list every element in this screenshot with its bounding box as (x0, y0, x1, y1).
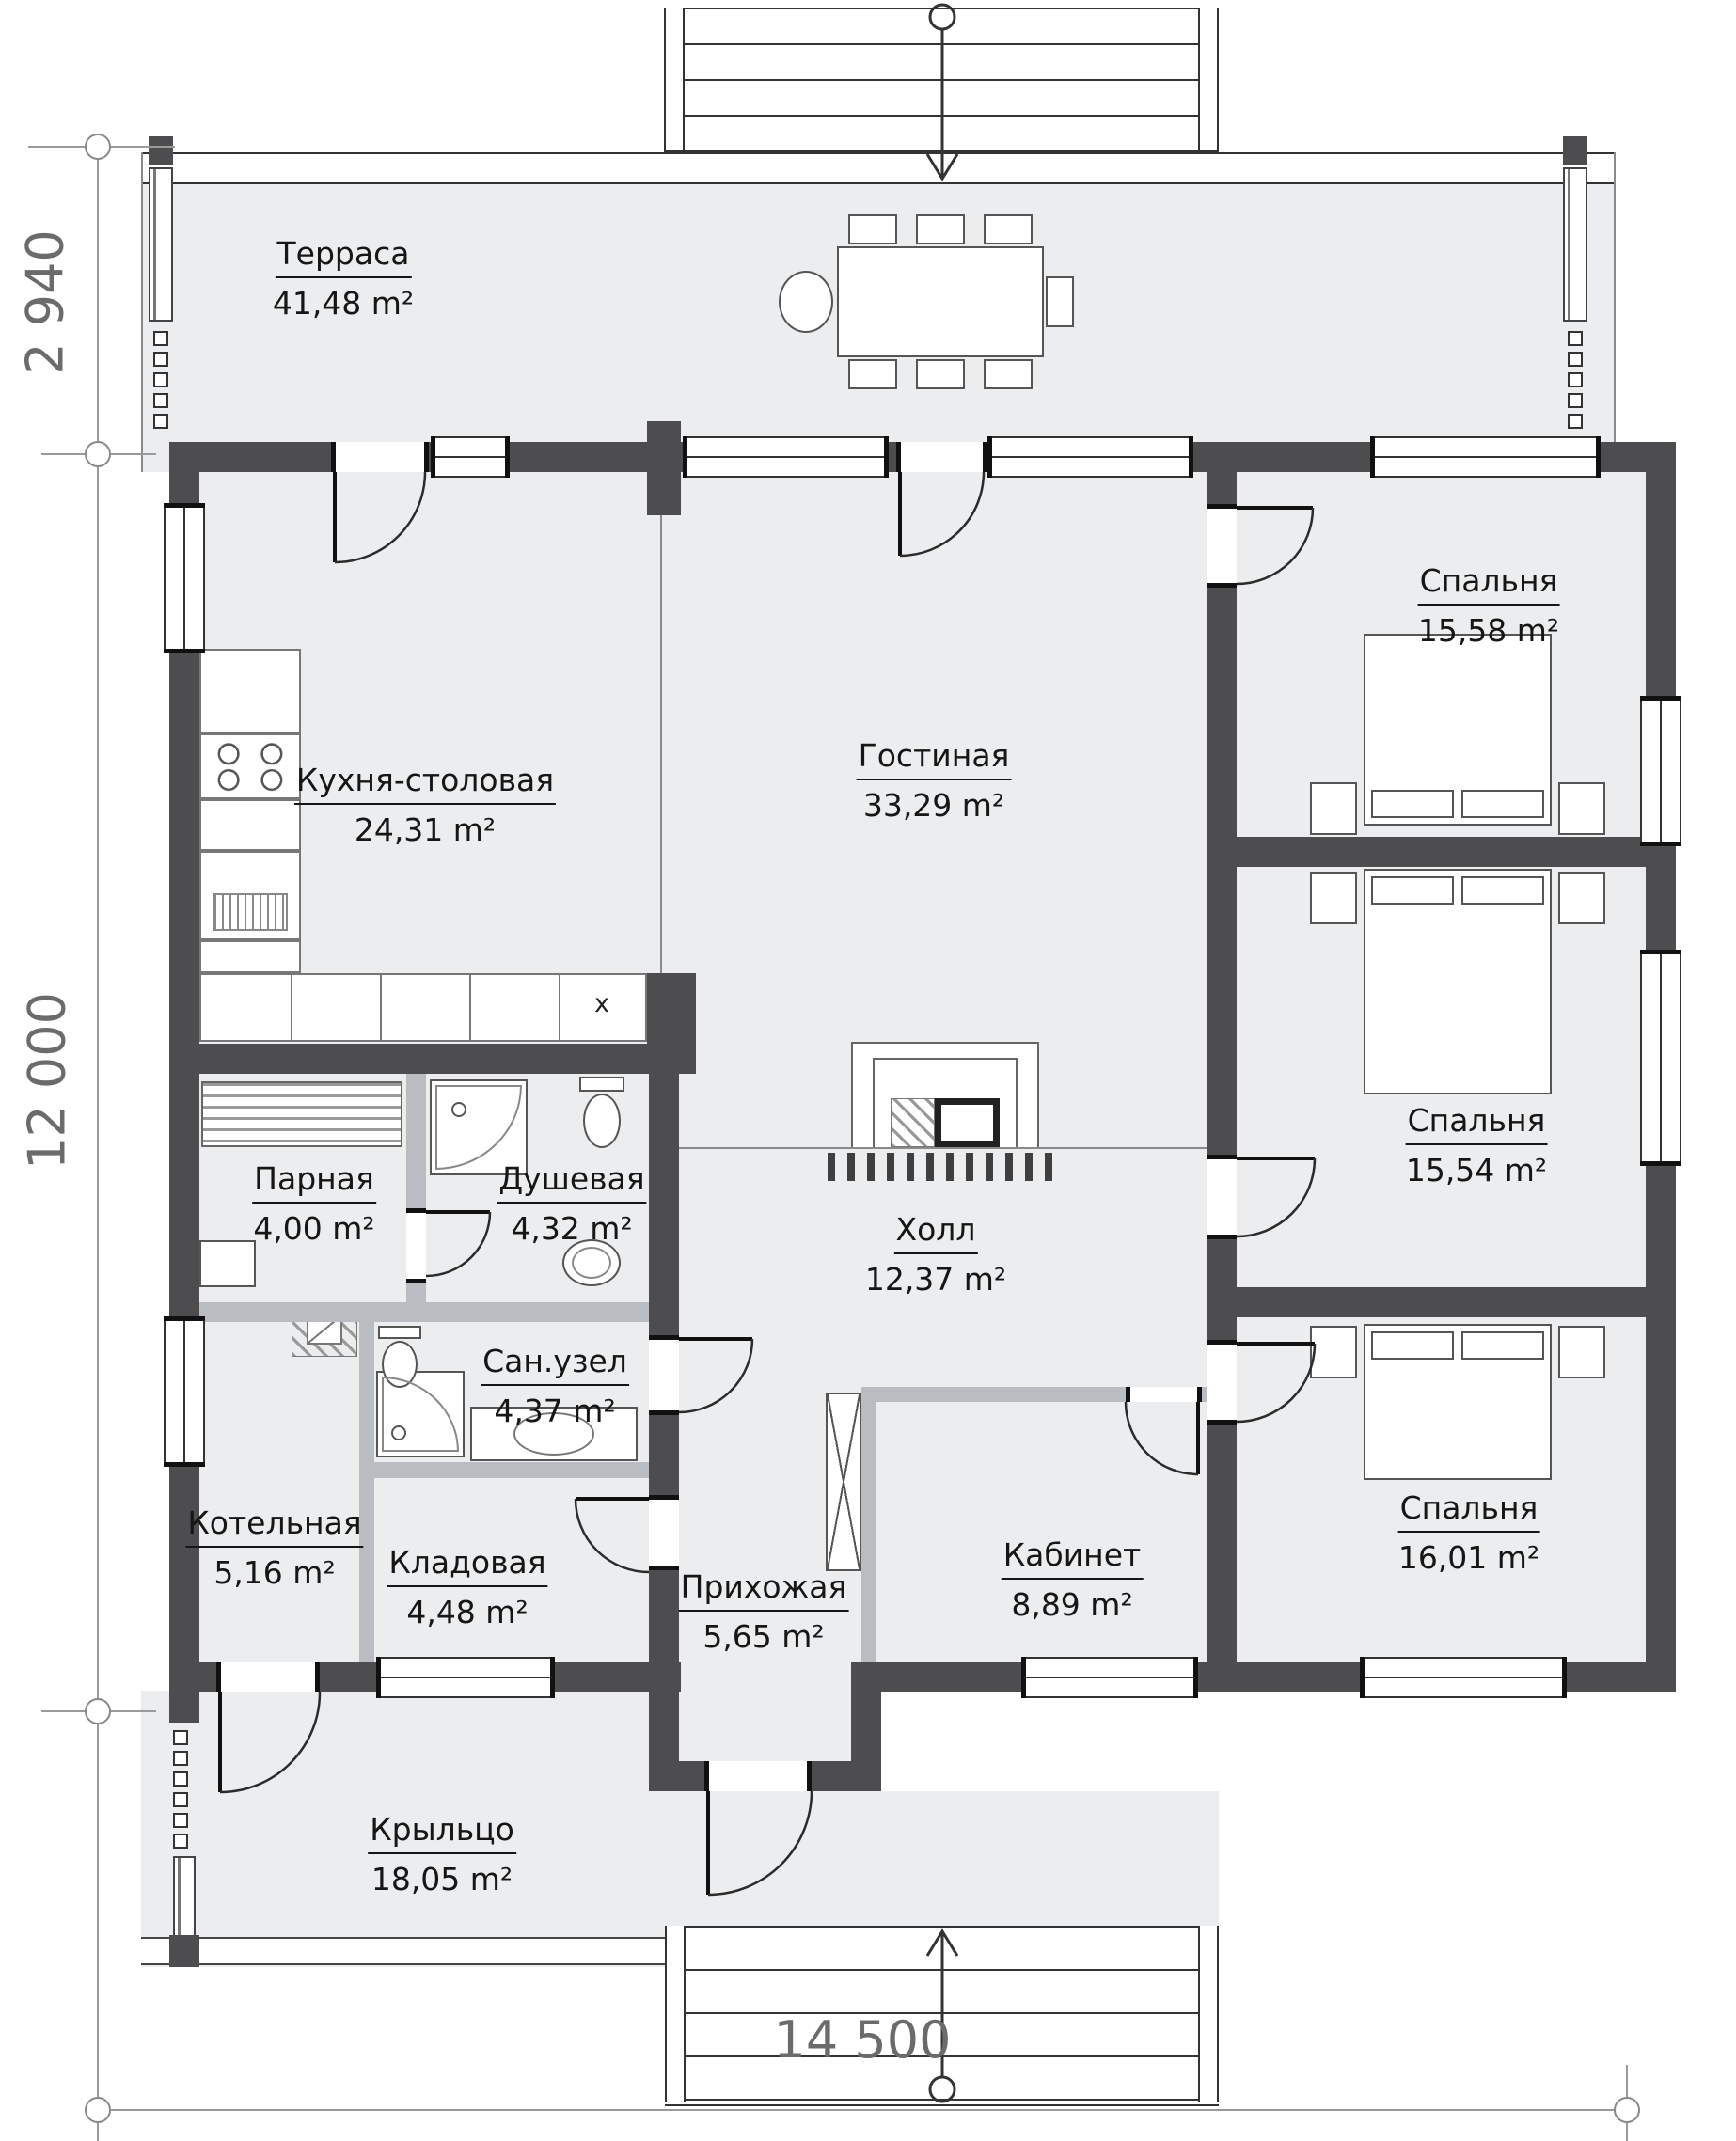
porch-corner-block-top (169, 1691, 199, 1723)
railing-post (1568, 352, 1583, 367)
pillow (1371, 790, 1454, 818)
toilet-cistern (378, 1326, 421, 1339)
room-label-living: Гостиная33,29 m² (857, 737, 1012, 824)
door-opening-wc (649, 1335, 679, 1415)
sauna-heater (199, 1240, 256, 1287)
stairs-top-stringer-right (1198, 8, 1219, 150)
room-label-bedroom1: Спальня15,58 m² (1418, 562, 1560, 649)
porch-floor-right (851, 1791, 1219, 1928)
chair (1046, 276, 1074, 327)
window-bed3-south (1360, 1657, 1567, 1698)
partition-office-west (861, 1387, 876, 1662)
room-label-kitchen: Кухня-столовая24,31 m² (294, 762, 556, 848)
railing-post (1568, 372, 1583, 387)
nightstand (1558, 872, 1605, 924)
window-bed1-east (1640, 696, 1681, 846)
chair (984, 359, 1033, 389)
pillow (1371, 1331, 1454, 1360)
room-label-sauna: Парная4,00 m² (252, 1160, 376, 1247)
kitchen-counter-cell (199, 940, 301, 973)
dimension-left-top: 2 940 (16, 199, 75, 406)
railing-post (173, 1792, 188, 1807)
shower-drain (391, 1425, 406, 1440)
fireplace-hearth (891, 1098, 935, 1147)
vessel-sink-inner (572, 1247, 611, 1279)
floor-joists (828, 1153, 1063, 1181)
door-opening-terrace-kitchen (331, 442, 429, 472)
wardrobe (826, 1393, 861, 1571)
window-living-north-1 (683, 436, 889, 478)
room-label-bedroom3: Спальня16,01 m² (1398, 1489, 1540, 1576)
nightstand (1310, 782, 1357, 835)
railing-post (173, 1771, 188, 1787)
railing-post (173, 1813, 188, 1828)
partition-bath-south (199, 1302, 649, 1322)
terrace-rail-right (1563, 167, 1587, 322)
door-opening-bed1 (1207, 504, 1237, 588)
railing-post (153, 352, 168, 367)
toilet-bowl (583, 1094, 621, 1148)
pillow (1461, 790, 1544, 818)
room-label-storage: Кладовая4,48 m² (387, 1544, 547, 1630)
kitchen-counter-cell (199, 649, 301, 733)
door-opening-boiler-porch (216, 1662, 320, 1692)
window-bed2-east (1640, 950, 1681, 1166)
shower-drain (451, 1102, 466, 1117)
stairs-top-stringer-left (664, 8, 685, 150)
terrace-rail-left (149, 167, 173, 322)
terrace-corner-post-right (1563, 136, 1587, 165)
door-opening-terrace-living (896, 442, 987, 472)
window-kitchen-west (164, 503, 205, 653)
railing-post (153, 414, 168, 429)
kitchen-counter-cell (199, 799, 301, 851)
dimension-bottom: 14 500 (774, 2010, 952, 2070)
nightstand (1310, 872, 1357, 924)
wall-living-bedrooms (1207, 472, 1237, 1692)
room-label-office: Кабинет8,89 m² (1002, 1536, 1144, 1623)
nightstand (1558, 782, 1605, 835)
wall-interior-kitchen-south (169, 1044, 696, 1074)
pillow (1461, 1331, 1544, 1360)
railing-post (153, 331, 168, 346)
door-opening-office (1126, 1387, 1202, 1402)
stairs-bottom-stringer-left (665, 1926, 686, 2102)
room-label-shower: Душевая4,32 m² (497, 1160, 646, 1247)
kitchen-sink-mark: x (594, 989, 609, 1018)
wall-hall-west (649, 1074, 679, 1791)
door-opening-sauna-shower (406, 1208, 426, 1283)
floor-plan: x (0, 0, 1736, 2141)
firebox (935, 1098, 1000, 1147)
railing-post (173, 1730, 188, 1745)
window-kitchen-north (431, 436, 510, 478)
railing-post (153, 372, 168, 387)
railing-post (173, 1751, 188, 1766)
door-opening-entry-porch (704, 1761, 812, 1791)
room-label-terrace: Терраса41,48 m² (273, 235, 414, 322)
window-boiler-west (164, 1316, 205, 1467)
wall-pillar (647, 421, 681, 515)
chair (848, 214, 897, 244)
toilet-cistern (579, 1077, 624, 1092)
porch-rail-left (173, 1856, 196, 1937)
window-office-south (1021, 1657, 1198, 1698)
wall-bed2-bed3 (1207, 1287, 1676, 1317)
porch-edge-band (141, 1937, 667, 1965)
kitchen-living-divider (660, 472, 662, 973)
wall-entry-east (851, 1691, 881, 1791)
railing-post (153, 393, 168, 408)
chair (916, 359, 965, 389)
chair (848, 359, 897, 389)
nightstand (1310, 1326, 1357, 1378)
window-bed1-north (1370, 436, 1601, 478)
stairs-top (664, 8, 1219, 152)
chair (916, 214, 965, 244)
door-opening-bed2 (1207, 1155, 1237, 1239)
porch-corner-block-bottom (169, 1935, 199, 1967)
chair (984, 214, 1033, 244)
terrace-right-edge (1614, 152, 1616, 472)
door-opening-bed3 (1207, 1340, 1237, 1425)
partition-wc-south (359, 1462, 649, 1478)
door-opening-storage (649, 1495, 679, 1570)
room-label-entry: Прихожая5,65 m² (679, 1568, 849, 1655)
railing-post (173, 1834, 188, 1849)
room-label-porch: Крыльцо18,05 m² (368, 1811, 516, 1897)
terrace-corner-post-left (149, 136, 173, 165)
window-living-north-2 (987, 436, 1193, 478)
hall-boundary-line (679, 1147, 1207, 1149)
room-label-boiler: Котельная5,16 m² (185, 1504, 363, 1591)
pillow (1371, 876, 1454, 905)
kitchen-counter-row (199, 973, 647, 1042)
railing-post (1568, 331, 1583, 346)
wall-pillar (647, 973, 696, 1048)
dimension-left-side: 12 000 (18, 954, 77, 1208)
partition-boiler-storage (359, 1322, 374, 1662)
railing-post (1568, 414, 1583, 429)
nightstand (1558, 1326, 1605, 1378)
stove-icon (199, 733, 301, 799)
room-label-hall: Холл12,37 m² (865, 1211, 1006, 1298)
railing-post (1568, 393, 1583, 408)
room-label-bedroom2: Спальня15,54 m² (1406, 1102, 1548, 1189)
window-storage-south (376, 1657, 555, 1698)
stairs-bottom-stringer-right (1198, 1926, 1219, 2102)
armchair (779, 271, 833, 333)
sauna-bench (201, 1081, 402, 1147)
terrace-edge-band (141, 152, 1616, 184)
sink-drainer (213, 893, 288, 931)
terrace-left-edge (141, 152, 143, 472)
dining-table (837, 246, 1044, 357)
wall-bed1-bed2 (1207, 837, 1676, 867)
pillow (1461, 876, 1544, 905)
room-label-wc: Сан.узел4,37 m² (481, 1343, 629, 1429)
